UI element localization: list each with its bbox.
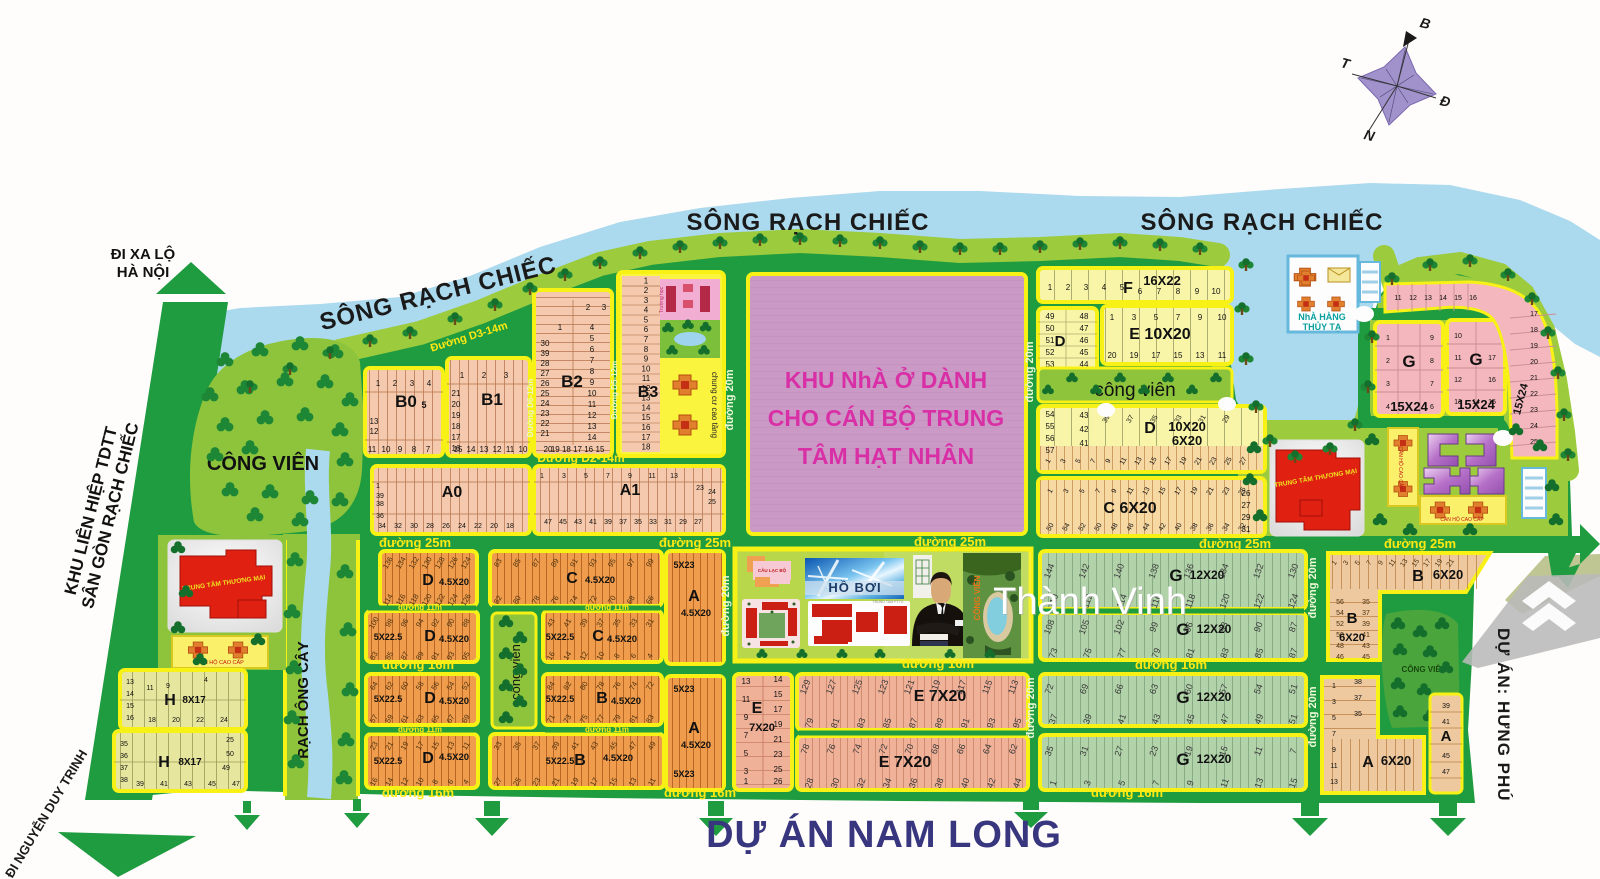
svg-text:48: 48	[1336, 643, 1344, 650]
svg-text:5: 5	[1120, 283, 1125, 292]
svg-text:1: 1	[1110, 313, 1115, 322]
svg-text:8: 8	[1430, 358, 1434, 365]
svg-text:19: 19	[1530, 343, 1538, 350]
svg-text:đường 11m: đường 11m	[398, 725, 442, 734]
svg-text:8: 8	[412, 445, 417, 454]
svg-text:9: 9	[1430, 335, 1434, 342]
svg-text:chung cư cao tầng: chung cư cao tầng	[710, 372, 719, 438]
svg-text:23: 23	[696, 485, 704, 492]
svg-text:TÂM HẠT NHÂN: TÂM HẠT NHÂN	[798, 442, 974, 469]
svg-text:7: 7	[744, 731, 749, 740]
svg-text:3: 3	[644, 296, 649, 305]
svg-text:5X22.5: 5X22.5	[374, 632, 403, 642]
svg-text:39: 39	[136, 781, 144, 788]
svg-text:39: 39	[541, 349, 550, 358]
svg-text:57: 57	[1046, 446, 1055, 455]
svg-text:4.5X20: 4.5X20	[607, 634, 637, 645]
svg-text:38: 38	[120, 777, 128, 784]
svg-text:4: 4	[644, 306, 649, 315]
svg-text:15: 15	[1488, 399, 1496, 406]
svg-text:đường 25m: đường 25m	[1384, 536, 1456, 551]
svg-text:CHO CÁN BỘ TRUNG: CHO CÁN BỘ TRUNG	[768, 404, 1004, 431]
svg-text:5: 5	[1154, 313, 1159, 322]
svg-text:2: 2	[644, 286, 649, 295]
svg-text:10: 10	[519, 445, 528, 454]
svg-text:14: 14	[774, 675, 783, 684]
svg-text:7: 7	[606, 473, 610, 480]
svg-text:DỰ ÁN NAM LONG: DỰ ÁN NAM LONG	[706, 812, 1062, 856]
svg-text:D: D	[422, 750, 434, 767]
svg-text:đường 11m: đường 11m	[585, 603, 629, 612]
svg-text:55: 55	[1046, 422, 1055, 431]
svg-text:24: 24	[458, 523, 466, 530]
svg-text:34: 34	[378, 523, 386, 530]
svg-text:11: 11	[506, 445, 515, 454]
svg-text:E: E	[752, 700, 763, 717]
svg-text:54: 54	[1336, 610, 1344, 617]
svg-text:17: 17	[1530, 311, 1538, 318]
svg-text:C: C	[566, 570, 578, 587]
svg-text:45: 45	[1442, 753, 1450, 760]
svg-text:13: 13	[588, 422, 597, 431]
svg-text:7: 7	[426, 445, 431, 454]
svg-text:20: 20	[172, 717, 180, 724]
svg-text:A: A	[688, 588, 700, 605]
svg-text:CĂN HỘ CAO CẤP: CĂN HỘ CAO CẤP	[1397, 446, 1404, 490]
svg-text:49: 49	[1046, 312, 1055, 321]
svg-text:50: 50	[1046, 324, 1055, 333]
svg-text:36: 36	[376, 513, 384, 520]
svg-text:35: 35	[1362, 599, 1370, 606]
svg-text:43: 43	[184, 781, 192, 788]
svg-text:11: 11	[1330, 763, 1337, 770]
svg-text:5: 5	[644, 315, 649, 324]
svg-text:CĂN HỘ CAO CẤP: CĂN HỘ CAO CẤP	[1440, 516, 1484, 523]
svg-text:22: 22	[196, 717, 204, 724]
svg-text:8: 8	[644, 345, 649, 354]
svg-text:11: 11	[146, 685, 153, 692]
svg-text:11: 11	[1218, 351, 1227, 360]
svg-text:1: 1	[540, 473, 544, 480]
svg-text:1: 1	[1048, 283, 1053, 292]
svg-text:5: 5	[584, 473, 588, 480]
svg-text:đường 20m: đường 20m	[1307, 686, 1319, 747]
svg-text:25: 25	[226, 737, 234, 744]
svg-text:đường 25m: đường 25m	[379, 535, 451, 550]
svg-text:19: 19	[1130, 351, 1139, 360]
svg-text:39: 39	[1442, 703, 1450, 710]
svg-text:45: 45	[559, 519, 567, 526]
svg-text:10: 10	[1218, 313, 1227, 322]
svg-text:B0: B0	[395, 392, 417, 411]
svg-text:28: 28	[541, 359, 550, 368]
svg-text:43: 43	[1080, 411, 1089, 420]
svg-text:21: 21	[452, 389, 461, 398]
svg-text:4: 4	[1102, 283, 1107, 292]
svg-text:4.5X20: 4.5X20	[681, 608, 711, 619]
svg-text:6X20: 6X20	[1381, 753, 1411, 768]
svg-text:11: 11	[368, 445, 377, 454]
svg-text:14: 14	[126, 691, 134, 698]
svg-text:B2: B2	[561, 372, 583, 391]
svg-text:NhÀ HÀNG: NhÀ HÀNG	[1298, 312, 1346, 322]
svg-text:42: 42	[1080, 425, 1089, 434]
svg-text:2: 2	[586, 303, 591, 312]
svg-text:4.5X20: 4.5X20	[603, 753, 633, 764]
svg-text:3: 3	[744, 767, 749, 776]
svg-text:9: 9	[644, 355, 649, 364]
svg-text:16X22: 16X22	[1143, 273, 1181, 288]
svg-text:9: 9	[628, 473, 632, 480]
svg-text:9: 9	[166, 683, 170, 690]
svg-text:17: 17	[1152, 351, 1161, 360]
svg-text:3: 3	[562, 473, 566, 480]
svg-text:26: 26	[442, 523, 450, 530]
svg-text:6X20: 6X20	[1339, 632, 1365, 644]
svg-text:SÔNG RẠCH CHIẾC: SÔNG RẠCH CHIẾC	[686, 208, 929, 236]
svg-text:đường 20m: đường 20m	[1307, 557, 1319, 618]
svg-text:10: 10	[382, 445, 391, 454]
svg-text:đường 20m: đường 20m	[1025, 677, 1037, 738]
svg-text:30: 30	[410, 523, 418, 530]
svg-text:4.5X20: 4.5X20	[439, 577, 469, 588]
svg-text:11: 11	[648, 473, 655, 480]
svg-text:A1: A1	[620, 482, 641, 499]
svg-text:3: 3	[1332, 699, 1336, 706]
svg-text:25: 25	[541, 389, 550, 398]
svg-text:19: 19	[452, 411, 461, 420]
svg-text:13: 13	[1196, 351, 1205, 360]
svg-text:B: B	[1347, 610, 1358, 627]
svg-text:4.5X20: 4.5X20	[439, 696, 469, 707]
svg-text:37: 37	[1362, 610, 1370, 617]
svg-text:17: 17	[452, 433, 461, 442]
svg-text:12: 12	[1409, 295, 1417, 302]
svg-text:21: 21	[1530, 375, 1538, 382]
svg-text:5X22.5: 5X22.5	[374, 756, 403, 766]
svg-text:11: 11	[1454, 355, 1461, 362]
svg-text:đường 16m: đường 16m	[902, 656, 974, 671]
svg-text:31: 31	[664, 519, 672, 526]
svg-text:đường 25m: đường 25m	[659, 535, 731, 550]
svg-text:1: 1	[376, 483, 380, 490]
svg-text:11: 11	[642, 374, 651, 383]
svg-text:12: 12	[1454, 377, 1462, 384]
svg-text:HÀ NỘI: HÀ NỘI	[117, 263, 170, 281]
svg-text:E 10X20: E 10X20	[1129, 326, 1190, 343]
svg-text:KHU NhÀ Ở DÀNH: KHU NhÀ Ở DÀNH	[785, 365, 987, 393]
svg-text:23: 23	[774, 750, 783, 759]
svg-text:24: 24	[708, 489, 716, 496]
svg-text:đường 20m: đường 20m	[720, 575, 732, 636]
svg-text:4: 4	[204, 677, 208, 684]
svg-text:19: 19	[774, 720, 783, 729]
svg-text:15: 15	[1454, 295, 1462, 302]
svg-text:32: 32	[394, 523, 402, 530]
svg-text:13: 13	[126, 679, 134, 686]
svg-text:ĐI XA LỘ: ĐI XA LỘ	[111, 245, 176, 263]
svg-text:4: 4	[427, 379, 432, 388]
svg-text:1: 1	[644, 276, 649, 285]
svg-text:3: 3	[410, 379, 415, 388]
svg-text:7: 7	[1332, 731, 1336, 738]
svg-text:10: 10	[588, 389, 597, 398]
svg-text:B3: B3	[638, 384, 659, 401]
svg-text:52: 52	[1046, 348, 1055, 357]
svg-text:2: 2	[1066, 283, 1071, 292]
svg-text:2: 2	[482, 371, 487, 380]
svg-text:1: 1	[460, 371, 465, 380]
svg-text:17: 17	[774, 705, 783, 714]
svg-text:41: 41	[1442, 719, 1450, 726]
svg-text:Đường D2-14m: Đường D2-14m	[537, 451, 624, 465]
svg-text:37: 37	[120, 765, 128, 772]
svg-text:C: C	[592, 628, 604, 645]
svg-text:35: 35	[634, 519, 642, 526]
svg-text:G: G	[1402, 352, 1415, 371]
svg-text:RẠCH ÔNG CÂY: RẠCH ÔNG CÂY	[294, 641, 312, 759]
svg-text:B: B	[1412, 568, 1424, 585]
svg-text:39: 39	[376, 493, 384, 500]
svg-text:45: 45	[1080, 348, 1089, 357]
svg-text:A: A	[1441, 728, 1452, 745]
svg-text:4: 4	[1386, 404, 1390, 411]
svg-text:13: 13	[742, 677, 751, 686]
svg-text:15: 15	[1174, 351, 1183, 360]
svg-text:29: 29	[679, 519, 687, 526]
svg-text:20: 20	[452, 400, 461, 409]
svg-text:5X22.5: 5X22.5	[374, 694, 403, 704]
svg-text:1: 1	[558, 323, 563, 332]
svg-text:A: A	[1362, 754, 1374, 771]
svg-text:D: D	[424, 628, 436, 645]
svg-text:5: 5	[1332, 715, 1336, 722]
svg-text:47: 47	[1442, 769, 1450, 776]
svg-text:ĐI NGUYỄN DUY TRINH: ĐI NGUYỄN DUY TRINH	[2, 747, 90, 879]
svg-text:HỒ BƠI: HỒ BƠI	[828, 580, 881, 595]
svg-text:17: 17	[642, 433, 651, 442]
svg-text:5X23: 5X23	[673, 769, 694, 779]
svg-text:41: 41	[589, 519, 597, 526]
svg-text:26: 26	[1242, 489, 1251, 498]
svg-text:6: 6	[1430, 404, 1434, 411]
svg-text:7: 7	[590, 356, 595, 365]
svg-text:E 7X20: E 7X20	[879, 754, 932, 771]
svg-text:H: H	[158, 754, 170, 771]
svg-text:6: 6	[1138, 287, 1143, 296]
svg-text:4.5X20: 4.5X20	[439, 634, 469, 645]
svg-text:49: 49	[222, 765, 230, 772]
svg-text:5: 5	[421, 400, 426, 410]
svg-text:5X23: 5X23	[673, 560, 694, 570]
svg-text:9: 9	[590, 378, 595, 387]
svg-text:16: 16	[452, 444, 461, 453]
svg-text:13: 13	[370, 417, 379, 426]
svg-text:13: 13	[1424, 295, 1432, 302]
svg-text:1: 1	[376, 379, 381, 388]
svg-text:B1: B1	[481, 390, 503, 409]
svg-text:22: 22	[474, 523, 482, 530]
svg-text:37: 37	[1354, 695, 1362, 702]
svg-text:11: 11	[588, 400, 597, 409]
svg-text:đường 16m: đường 16m	[664, 785, 736, 800]
svg-text:56: 56	[1046, 434, 1055, 443]
svg-text:10: 10	[1212, 287, 1221, 296]
svg-text:37: 37	[619, 519, 627, 526]
svg-text:đường 25m: đường 25m	[914, 534, 986, 549]
svg-text:9: 9	[398, 445, 403, 454]
svg-text:35: 35	[120, 741, 128, 748]
svg-text:15: 15	[774, 690, 783, 699]
svg-text:CÂU LẠC BỘ: CÂU LẠC BỘ	[758, 566, 787, 573]
svg-text:18: 18	[148, 717, 156, 724]
svg-text:6: 6	[590, 345, 595, 354]
svg-text:đường 20m: đường 20m	[1024, 341, 1036, 402]
svg-text:17: 17	[1488, 355, 1496, 362]
svg-text:13: 13	[480, 445, 489, 454]
svg-text:13: 13	[1454, 399, 1462, 406]
svg-text:1: 1	[1332, 683, 1336, 690]
svg-text:30: 30	[541, 339, 550, 348]
svg-text:3: 3	[1084, 283, 1089, 292]
svg-text:3: 3	[602, 303, 607, 312]
svg-text:12: 12	[370, 427, 379, 436]
svg-text:18: 18	[642, 443, 651, 452]
svg-text:4.5X20: 4.5X20	[439, 752, 469, 763]
svg-text:18: 18	[452, 422, 461, 431]
svg-text:8: 8	[1176, 287, 1181, 296]
svg-text:TRUNG TÂM PTTG: TRUNG TÂM PTTG	[872, 600, 903, 604]
svg-text:6X20: 6X20	[1172, 433, 1202, 448]
svg-text:công viên: công viên	[1094, 380, 1175, 401]
svg-text:23: 23	[541, 409, 550, 418]
svg-text:25: 25	[708, 499, 716, 506]
svg-text:26: 26	[774, 777, 783, 786]
svg-text:1: 1	[1386, 335, 1390, 342]
svg-text:39: 39	[1362, 621, 1370, 628]
svg-text:3: 3	[1386, 381, 1390, 388]
svg-text:Đường D6-12m: Đường D6-12m	[526, 379, 535, 437]
svg-text:14: 14	[642, 403, 651, 412]
svg-text:41: 41	[1080, 439, 1089, 448]
svg-text:9: 9	[1195, 287, 1200, 296]
svg-text:14: 14	[1472, 399, 1480, 406]
svg-text:24: 24	[541, 399, 550, 408]
svg-text:6X20: 6X20	[1433, 567, 1463, 582]
svg-text:15: 15	[126, 703, 134, 710]
svg-text:13: 13	[1330, 779, 1338, 786]
svg-text:N: N	[1362, 126, 1377, 144]
svg-text:27: 27	[1242, 501, 1251, 510]
svg-text:52: 52	[1336, 621, 1344, 628]
svg-text:23: 23	[1530, 407, 1538, 414]
svg-text:đường 16m: đường 16m	[1091, 785, 1163, 800]
svg-text:46: 46	[1336, 654, 1344, 661]
svg-text:7: 7	[644, 335, 649, 344]
svg-text:DỰ ÁN: HƯNG PHÚ: DỰ ÁN: HƯNG PHÚ	[1494, 628, 1513, 802]
svg-text:27: 27	[694, 519, 702, 526]
svg-text:54: 54	[1046, 410, 1055, 419]
svg-text:CÔNG VIÊN: CÔNG VIÊN	[973, 575, 982, 620]
svg-text:14: 14	[588, 433, 597, 442]
svg-text:22: 22	[541, 419, 550, 428]
svg-text:5X22.5: 5X22.5	[546, 756, 575, 766]
svg-text:16: 16	[1469, 295, 1477, 302]
svg-text:2: 2	[1386, 358, 1390, 365]
svg-text:22: 22	[1530, 391, 1538, 398]
svg-text:8X17: 8X17	[182, 695, 206, 706]
svg-text:8X17: 8X17	[178, 757, 202, 768]
svg-text:A: A	[688, 720, 700, 737]
svg-text:H: H	[164, 692, 176, 709]
svg-text:10: 10	[642, 364, 651, 373]
svg-text:45: 45	[1362, 654, 1370, 661]
svg-text:Trường học: Trường học	[659, 286, 665, 313]
svg-text:47: 47	[1080, 324, 1089, 333]
svg-text:G: G	[1469, 350, 1482, 369]
svg-text:B: B	[574, 752, 586, 769]
svg-text:43: 43	[1362, 643, 1370, 650]
svg-text:4.5X20: 4.5X20	[681, 740, 711, 751]
svg-text:A0: A0	[442, 484, 463, 501]
svg-text:đường 25m: đường 25m	[1199, 536, 1271, 551]
svg-text:16: 16	[126, 715, 134, 722]
svg-text:D: D	[422, 572, 434, 589]
svg-text:9: 9	[744, 713, 749, 722]
svg-text:46: 46	[1080, 336, 1089, 345]
svg-text:đường 11m: đường 11m	[398, 603, 442, 612]
svg-text:20: 20	[490, 523, 498, 530]
svg-text:Đường D5-12m: Đường D5-12m	[610, 361, 619, 419]
svg-text:21: 21	[774, 735, 783, 744]
svg-text:5X22.5: 5X22.5	[546, 694, 575, 704]
svg-text:47: 47	[544, 519, 552, 526]
svg-text:9: 9	[1198, 313, 1203, 322]
svg-text:Đ: Đ	[1438, 92, 1452, 110]
svg-text:6: 6	[644, 325, 649, 334]
svg-text:38: 38	[1354, 679, 1362, 686]
svg-text:đường 16m: đường 16m	[1135, 657, 1207, 672]
svg-text:21: 21	[541, 429, 550, 438]
svg-text:56: 56	[1336, 599, 1344, 606]
svg-text:47: 47	[232, 781, 240, 788]
svg-text:đường 20m: đường 20m	[724, 369, 736, 430]
svg-text:13: 13	[670, 473, 678, 480]
svg-text:D: D	[1055, 333, 1066, 350]
svg-text:28: 28	[426, 523, 434, 530]
svg-text:T: T	[1339, 54, 1353, 72]
svg-text:7: 7	[1176, 313, 1181, 322]
svg-text:39: 39	[604, 519, 612, 526]
svg-text:3: 3	[504, 371, 509, 380]
svg-text:5: 5	[744, 749, 749, 758]
svg-text:14: 14	[467, 445, 476, 454]
svg-text:18: 18	[1530, 327, 1538, 334]
svg-text:5X23: 5X23	[673, 684, 694, 694]
svg-text:11: 11	[1394, 295, 1401, 302]
svg-text:33: 33	[649, 519, 657, 526]
svg-text:20: 20	[1108, 351, 1117, 360]
svg-text:C 6X20: C 6X20	[1103, 500, 1156, 517]
svg-text:10: 10	[1454, 333, 1462, 340]
svg-text:đường 16m: đường 16m	[382, 657, 454, 672]
svg-text:24: 24	[220, 717, 228, 724]
svg-text:25: 25	[774, 765, 783, 774]
svg-text:D: D	[424, 690, 436, 707]
svg-text:đường 16m: đường 16m	[382, 785, 454, 800]
svg-text:15X24: 15X24	[1390, 399, 1428, 414]
svg-text:3: 3	[1132, 313, 1137, 322]
